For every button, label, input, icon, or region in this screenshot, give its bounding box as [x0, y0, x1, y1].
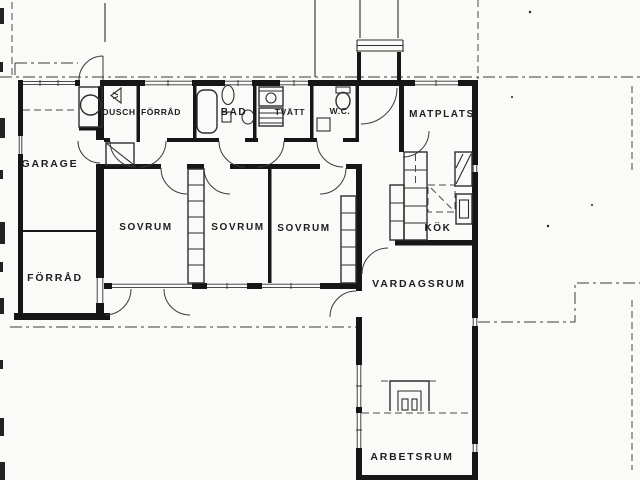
- room-label-dusch: DUSCH: [102, 107, 135, 117]
- door-arc-vardagsrum: [362, 248, 388, 274]
- door-arc-kok: [403, 131, 429, 157]
- garage-door: [23, 80, 75, 86]
- door-arc-garage-hall: [78, 141, 100, 163]
- shower-icon: [111, 88, 121, 103]
- bathtub-icon: [197, 90, 217, 133]
- window-right-1: [473, 165, 477, 172]
- window-garage-left: [19, 136, 22, 154]
- door-arc-forrad: [140, 141, 166, 167]
- washbasin-icon: [222, 86, 234, 105]
- door-arc-entrance: [361, 88, 397, 124]
- window-matplats: [415, 80, 458, 86]
- door-arc-terrace-2: [164, 289, 190, 315]
- terrace-line-right: [478, 283, 640, 322]
- stove-icon: [456, 194, 472, 224]
- room-label-arbetsrum: ARBETSRUM: [370, 451, 453, 463]
- window-sovrum1: [112, 284, 192, 287]
- boiler-circle-icon: [81, 95, 101, 115]
- door-arc-sovrum1: [161, 168, 187, 194]
- door-arc-vardagsrum-terrace: [330, 291, 356, 317]
- room-label-wc: W.C.: [330, 106, 351, 116]
- window-right-2: [473, 318, 477, 326]
- carport-line: [15, 63, 78, 77]
- window-top-3: [280, 80, 308, 86]
- room-label-kok: KÖK: [424, 221, 451, 234]
- wardrobe-column-icon: [341, 196, 356, 283]
- window-arbetsrum: [356, 413, 362, 448]
- kitchen-island-icon: [428, 185, 455, 212]
- room-label-garage: GARAGE: [22, 158, 79, 170]
- door-arc-wc: [317, 141, 343, 167]
- door-arc-bad: [219, 141, 245, 167]
- door-arc-tvatt: [258, 141, 284, 167]
- window-vardagsrum: [356, 365, 362, 407]
- room-label-forrad-garage: FÖRRÅD: [27, 271, 83, 284]
- room-label-sovrum-2: SOVRUM: [211, 222, 265, 233]
- door-arc-garage-side: [79, 56, 103, 80]
- windows: [19, 80, 477, 452]
- room-label-sovrum-3: SOVRUM: [277, 223, 331, 234]
- window-top-1: [145, 80, 192, 86]
- door-arc-sovrum3: [320, 168, 346, 194]
- room-label-matplats: MATPLATS: [409, 109, 475, 120]
- window-sovrum3: [262, 283, 320, 289]
- room-label-forrad: FÖRRÅD: [141, 107, 181, 117]
- floor-plan-page: GARAGE FÖRRÅD DUSCH FÖRRÅD BAD TVÄTT W.C…: [0, 0, 640, 480]
- entrance-steps-icon: [357, 40, 403, 52]
- floor-plan-drawing: GARAGE FÖRRÅD DUSCH FÖRRÅD BAD TVÄTT W.C…: [0, 0, 640, 480]
- door-arc-terrace-1: [105, 289, 131, 315]
- fireplace-icon: [381, 381, 438, 411]
- window-right-3: [473, 444, 477, 452]
- pantry-cabinets-icon: [390, 185, 404, 240]
- wardrobe-column-icon: [188, 169, 204, 283]
- room-label-tvatt: TVÄTT: [275, 107, 306, 117]
- room-label-vardagsrum: VARDAGSRUM: [372, 278, 466, 290]
- door-forrad-garage: [97, 278, 103, 303]
- room-label-bad: BAD: [221, 107, 247, 118]
- washing-machine-door: [266, 93, 276, 103]
- window-sovrum2: [207, 283, 247, 289]
- wc-basin-icon: [317, 118, 330, 131]
- room-label-sovrum-1: SOVRUM: [119, 222, 173, 233]
- scan-artifacts: [0, 8, 593, 480]
- refrigerator-icon: [455, 152, 472, 186]
- door-arc-sovrum2: [204, 168, 230, 194]
